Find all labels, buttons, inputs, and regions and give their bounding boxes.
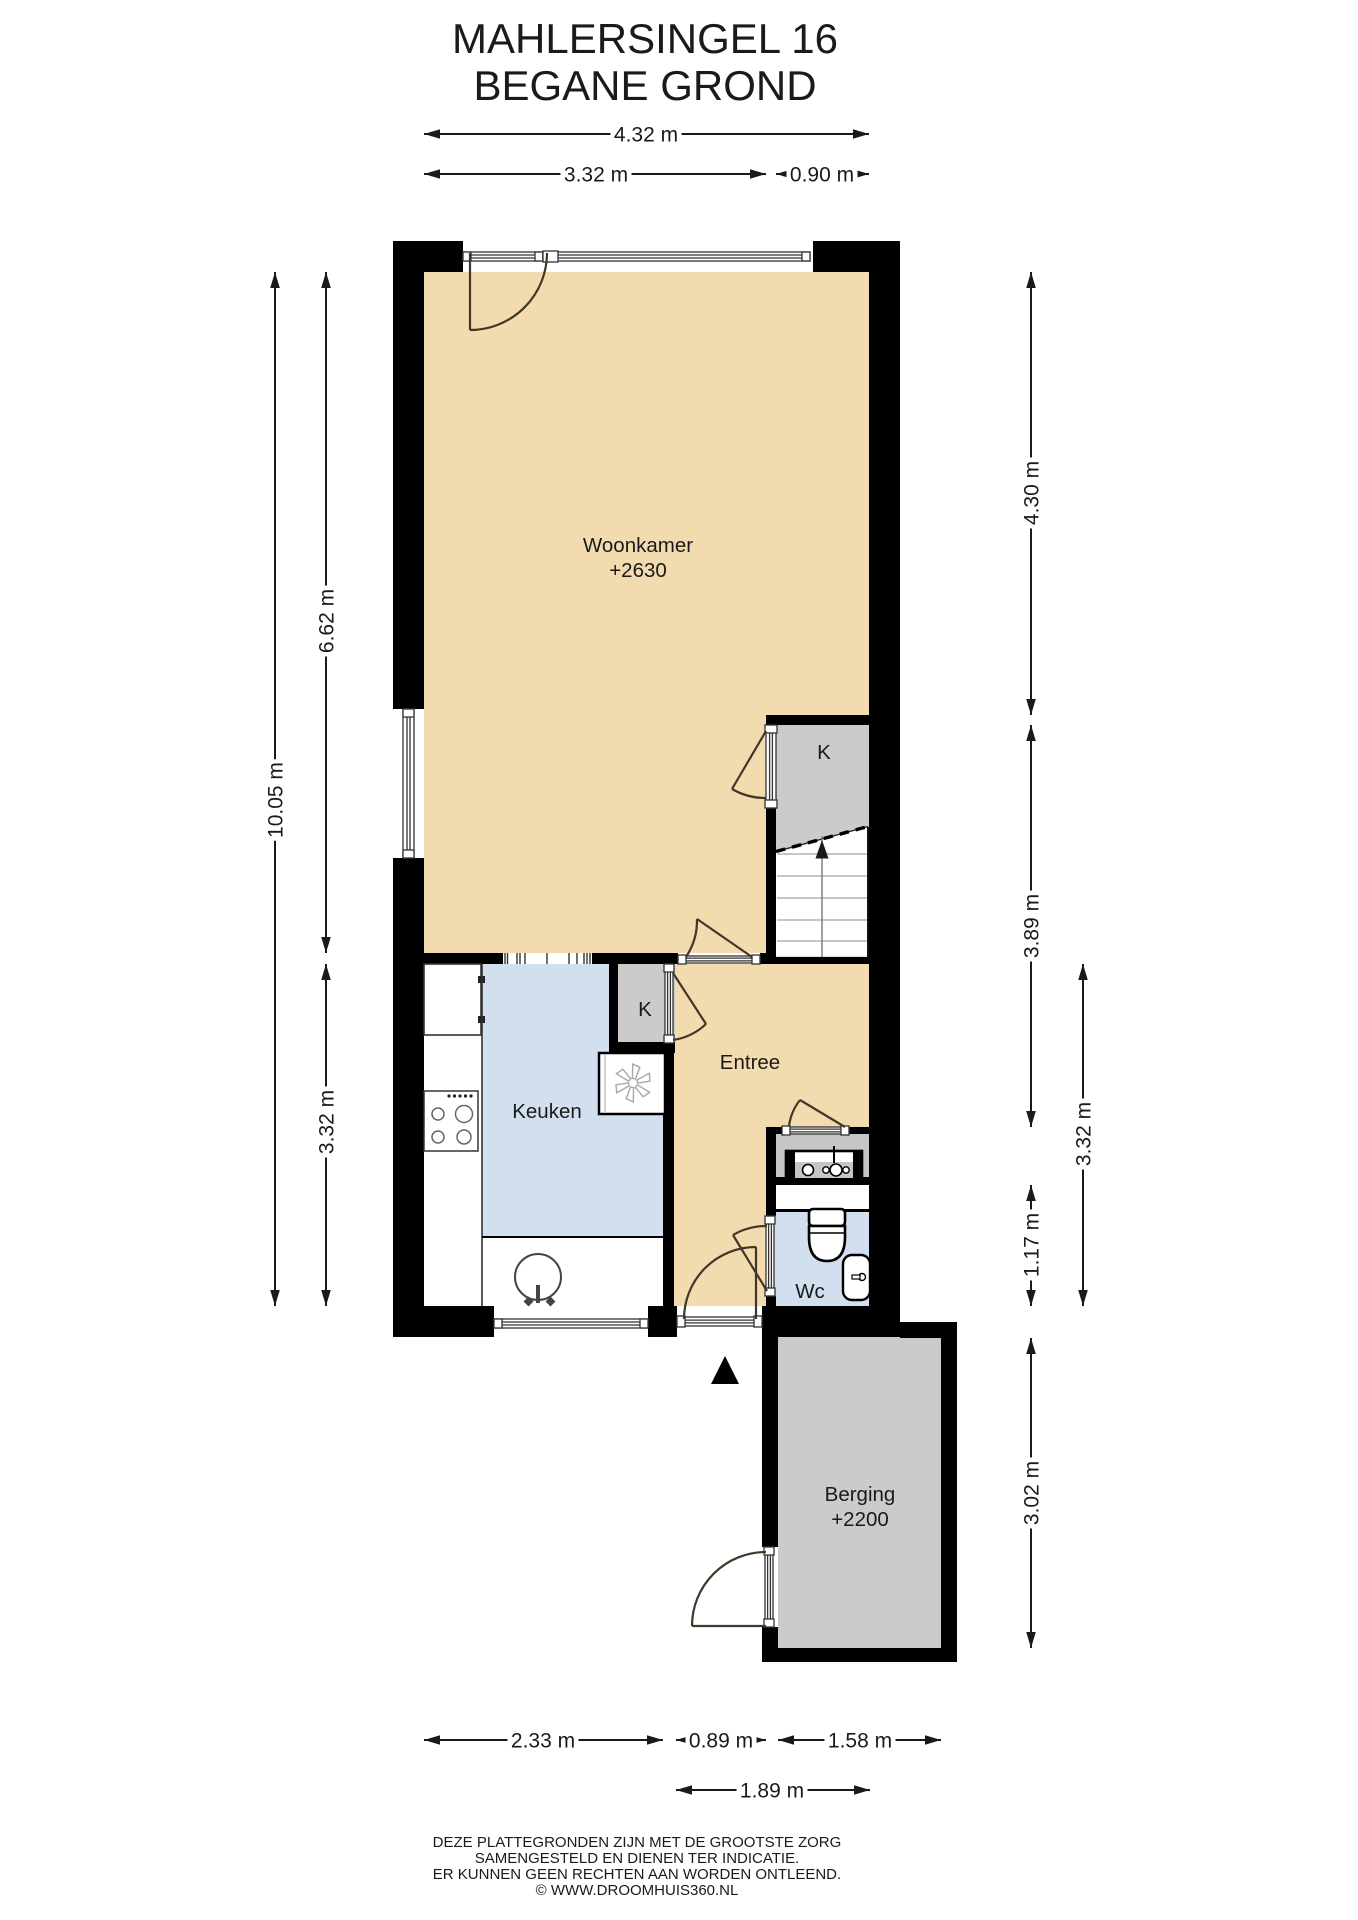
svg-text:Wc: Wc xyxy=(795,1280,825,1303)
svg-text:Keuken: Keuken xyxy=(512,1100,582,1123)
svg-text:+2630: +2630 xyxy=(609,559,667,582)
svg-text:6.62 m: 6.62 m xyxy=(316,589,339,653)
svg-text:SAMENGESTELD EN DIENEN TER IND: SAMENGESTELD EN DIENEN TER INDICATIE. xyxy=(475,1850,800,1867)
svg-text:10.05 m: 10.05 m xyxy=(265,762,288,838)
svg-text:Woonkamer: Woonkamer xyxy=(583,534,693,557)
svg-text:3.32 m: 3.32 m xyxy=(316,1090,339,1154)
svg-text:BEGANE GROND: BEGANE GROND xyxy=(473,62,816,109)
svg-text:1.89 m: 1.89 m xyxy=(740,1780,804,1803)
svg-text:3.02 m: 3.02 m xyxy=(1021,1461,1044,1525)
svg-text:3.32 m: 3.32 m xyxy=(1073,1102,1096,1166)
svg-text:1.17 m: 1.17 m xyxy=(1021,1213,1044,1277)
svg-text:3.89 m: 3.89 m xyxy=(1021,894,1044,958)
svg-text:MAHLERSINGEL 16: MAHLERSINGEL 16 xyxy=(452,15,838,62)
svg-text:© WWW.DROOMHUIS360.NL: © WWW.DROOMHUIS360.NL xyxy=(536,1882,739,1899)
svg-text:3.32 m: 3.32 m xyxy=(564,164,628,187)
svg-text:K: K xyxy=(817,741,831,764)
svg-text:4.30 m: 4.30 m xyxy=(1021,461,1044,525)
svg-text:K: K xyxy=(638,998,652,1021)
svg-text:DEZE PLATTEGRONDEN ZIJN MET DE: DEZE PLATTEGRONDEN ZIJN MET DE GROOTSTE … xyxy=(433,1834,842,1851)
svg-text:ER KUNNEN GEEN RECHTEN AAN WOR: ER KUNNEN GEEN RECHTEN AAN WORDEN ONTLEE… xyxy=(433,1866,841,1883)
svg-text:2.33 m: 2.33 m xyxy=(511,1730,575,1753)
svg-text:1.58 m: 1.58 m xyxy=(828,1730,892,1753)
svg-text:0.89 m: 0.89 m xyxy=(689,1730,753,1753)
svg-text:0.90 m: 0.90 m xyxy=(790,164,854,187)
svg-text:+2200: +2200 xyxy=(831,1508,889,1531)
svg-text:Berging: Berging xyxy=(825,1483,896,1506)
svg-text:4.32 m: 4.32 m xyxy=(614,124,678,147)
svg-text:Entree: Entree xyxy=(720,1051,780,1074)
